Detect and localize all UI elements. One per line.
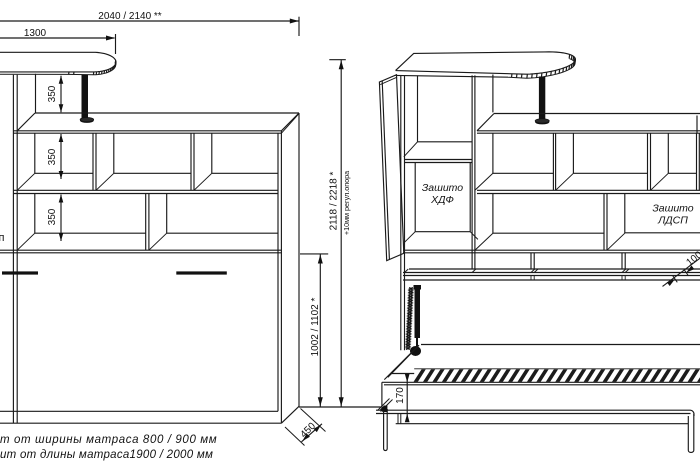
svg-text:ит от длины матраса1900 / 2000: ит от длины матраса1900 / 2000 мм bbox=[0, 449, 213, 461]
svg-text:170: 170 bbox=[395, 387, 406, 404]
svg-text:2118 / 2218 *: 2118 / 2218 * bbox=[329, 172, 340, 231]
svg-text:350: 350 bbox=[47, 208, 58, 225]
svg-text:450: 450 bbox=[298, 420, 318, 440]
svg-text:100: 100 bbox=[684, 249, 700, 268]
svg-text:т от ширины матраса 800 / 900: т от ширины матраса 800 / 900 мм bbox=[0, 434, 217, 446]
svg-text:1300: 1300 bbox=[24, 28, 47, 39]
svg-text:350: 350 bbox=[47, 148, 58, 165]
svg-text:+10мм регул.опора: +10мм регул.опора bbox=[342, 171, 351, 235]
svg-text:1002 / 1102 *: 1002 / 1102 * bbox=[310, 298, 321, 357]
svg-text:350: 350 bbox=[47, 85, 58, 102]
svg-text:2040 / 2140 **: 2040 / 2140 ** bbox=[98, 11, 161, 22]
svg-text:п: п bbox=[0, 232, 5, 244]
svg-text:Зашито: Зашито bbox=[652, 203, 693, 215]
svg-text:ХДФ: ХДФ bbox=[430, 194, 454, 206]
svg-text:Зашито: Зашито bbox=[422, 182, 463, 194]
svg-text:ЛДСП: ЛДСП bbox=[657, 215, 688, 227]
